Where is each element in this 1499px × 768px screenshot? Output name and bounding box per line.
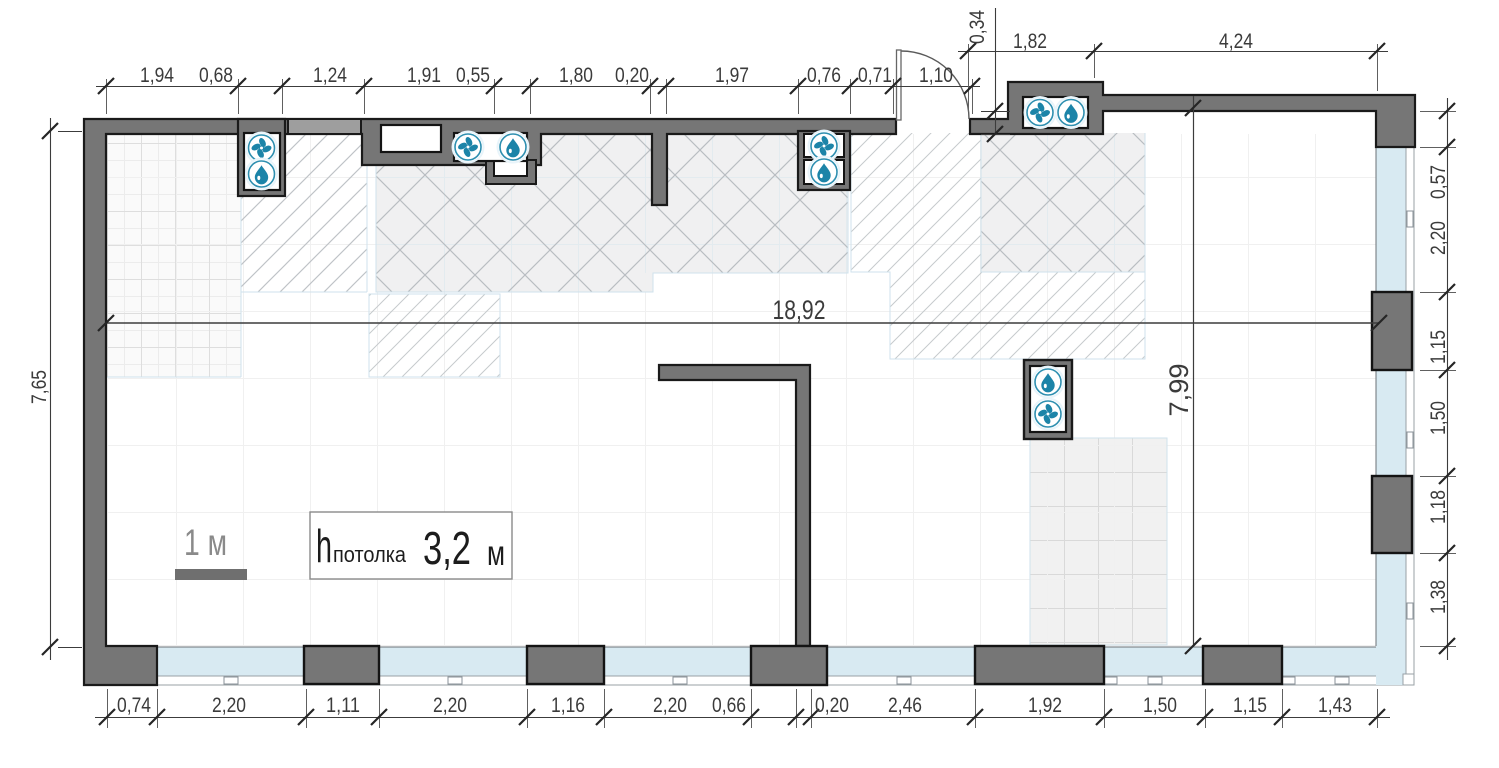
svg-text:0,71: 0,71 xyxy=(858,63,892,87)
svg-text:0,68: 0,68 xyxy=(199,63,233,87)
svg-text:2,46: 2,46 xyxy=(888,693,922,717)
svg-text:0,66: 0,66 xyxy=(712,693,746,717)
svg-text:0,20: 0,20 xyxy=(815,693,849,717)
svg-text:2,20: 2,20 xyxy=(212,693,246,717)
svg-text:м: м xyxy=(487,534,505,573)
svg-text:4,24: 4,24 xyxy=(1219,29,1253,53)
svg-text:1 м: 1 м xyxy=(184,522,227,563)
svg-text:1,15: 1,15 xyxy=(1426,330,1450,364)
svg-text:1,38: 1,38 xyxy=(1426,580,1450,614)
svg-text:0,76: 0,76 xyxy=(807,63,841,87)
svg-text:2,20: 2,20 xyxy=(1426,221,1450,255)
svg-text:1,11: 1,11 xyxy=(326,693,360,717)
svg-text:18,92: 18,92 xyxy=(773,295,826,325)
svg-text:7,65: 7,65 xyxy=(27,370,51,404)
svg-text:потолка: потолка xyxy=(333,542,406,567)
svg-text:0,34: 0,34 xyxy=(965,10,989,44)
svg-text:1,94: 1,94 xyxy=(140,63,174,87)
svg-text:2,20: 2,20 xyxy=(433,693,467,717)
svg-text:1,18: 1,18 xyxy=(1426,490,1450,524)
svg-text:1,15: 1,15 xyxy=(1233,693,1267,717)
svg-text:1,92: 1,92 xyxy=(1028,693,1062,717)
svg-text:0,55: 0,55 xyxy=(456,63,490,87)
svg-text:7,99: 7,99 xyxy=(1164,364,1194,417)
svg-text:0,57: 0,57 xyxy=(1426,165,1450,199)
svg-text:1,10: 1,10 xyxy=(919,63,953,87)
svg-text:0,74: 0,74 xyxy=(117,693,151,717)
svg-text:1,50: 1,50 xyxy=(1143,693,1177,717)
svg-text:0,20: 0,20 xyxy=(615,63,649,87)
svg-text:1,82: 1,82 xyxy=(1013,29,1047,53)
svg-text:3,2: 3,2 xyxy=(423,522,471,574)
svg-text:1,43: 1,43 xyxy=(1318,693,1352,717)
svg-text:1,50: 1,50 xyxy=(1426,401,1450,435)
svg-text:h: h xyxy=(316,520,332,572)
svg-text:1,97: 1,97 xyxy=(715,63,749,87)
svg-text:1,16: 1,16 xyxy=(551,693,585,717)
svg-text:2,20: 2,20 xyxy=(653,693,687,717)
svg-text:1,24: 1,24 xyxy=(313,63,347,87)
svg-text:1,80: 1,80 xyxy=(559,63,593,87)
svg-text:1,91: 1,91 xyxy=(407,63,441,87)
